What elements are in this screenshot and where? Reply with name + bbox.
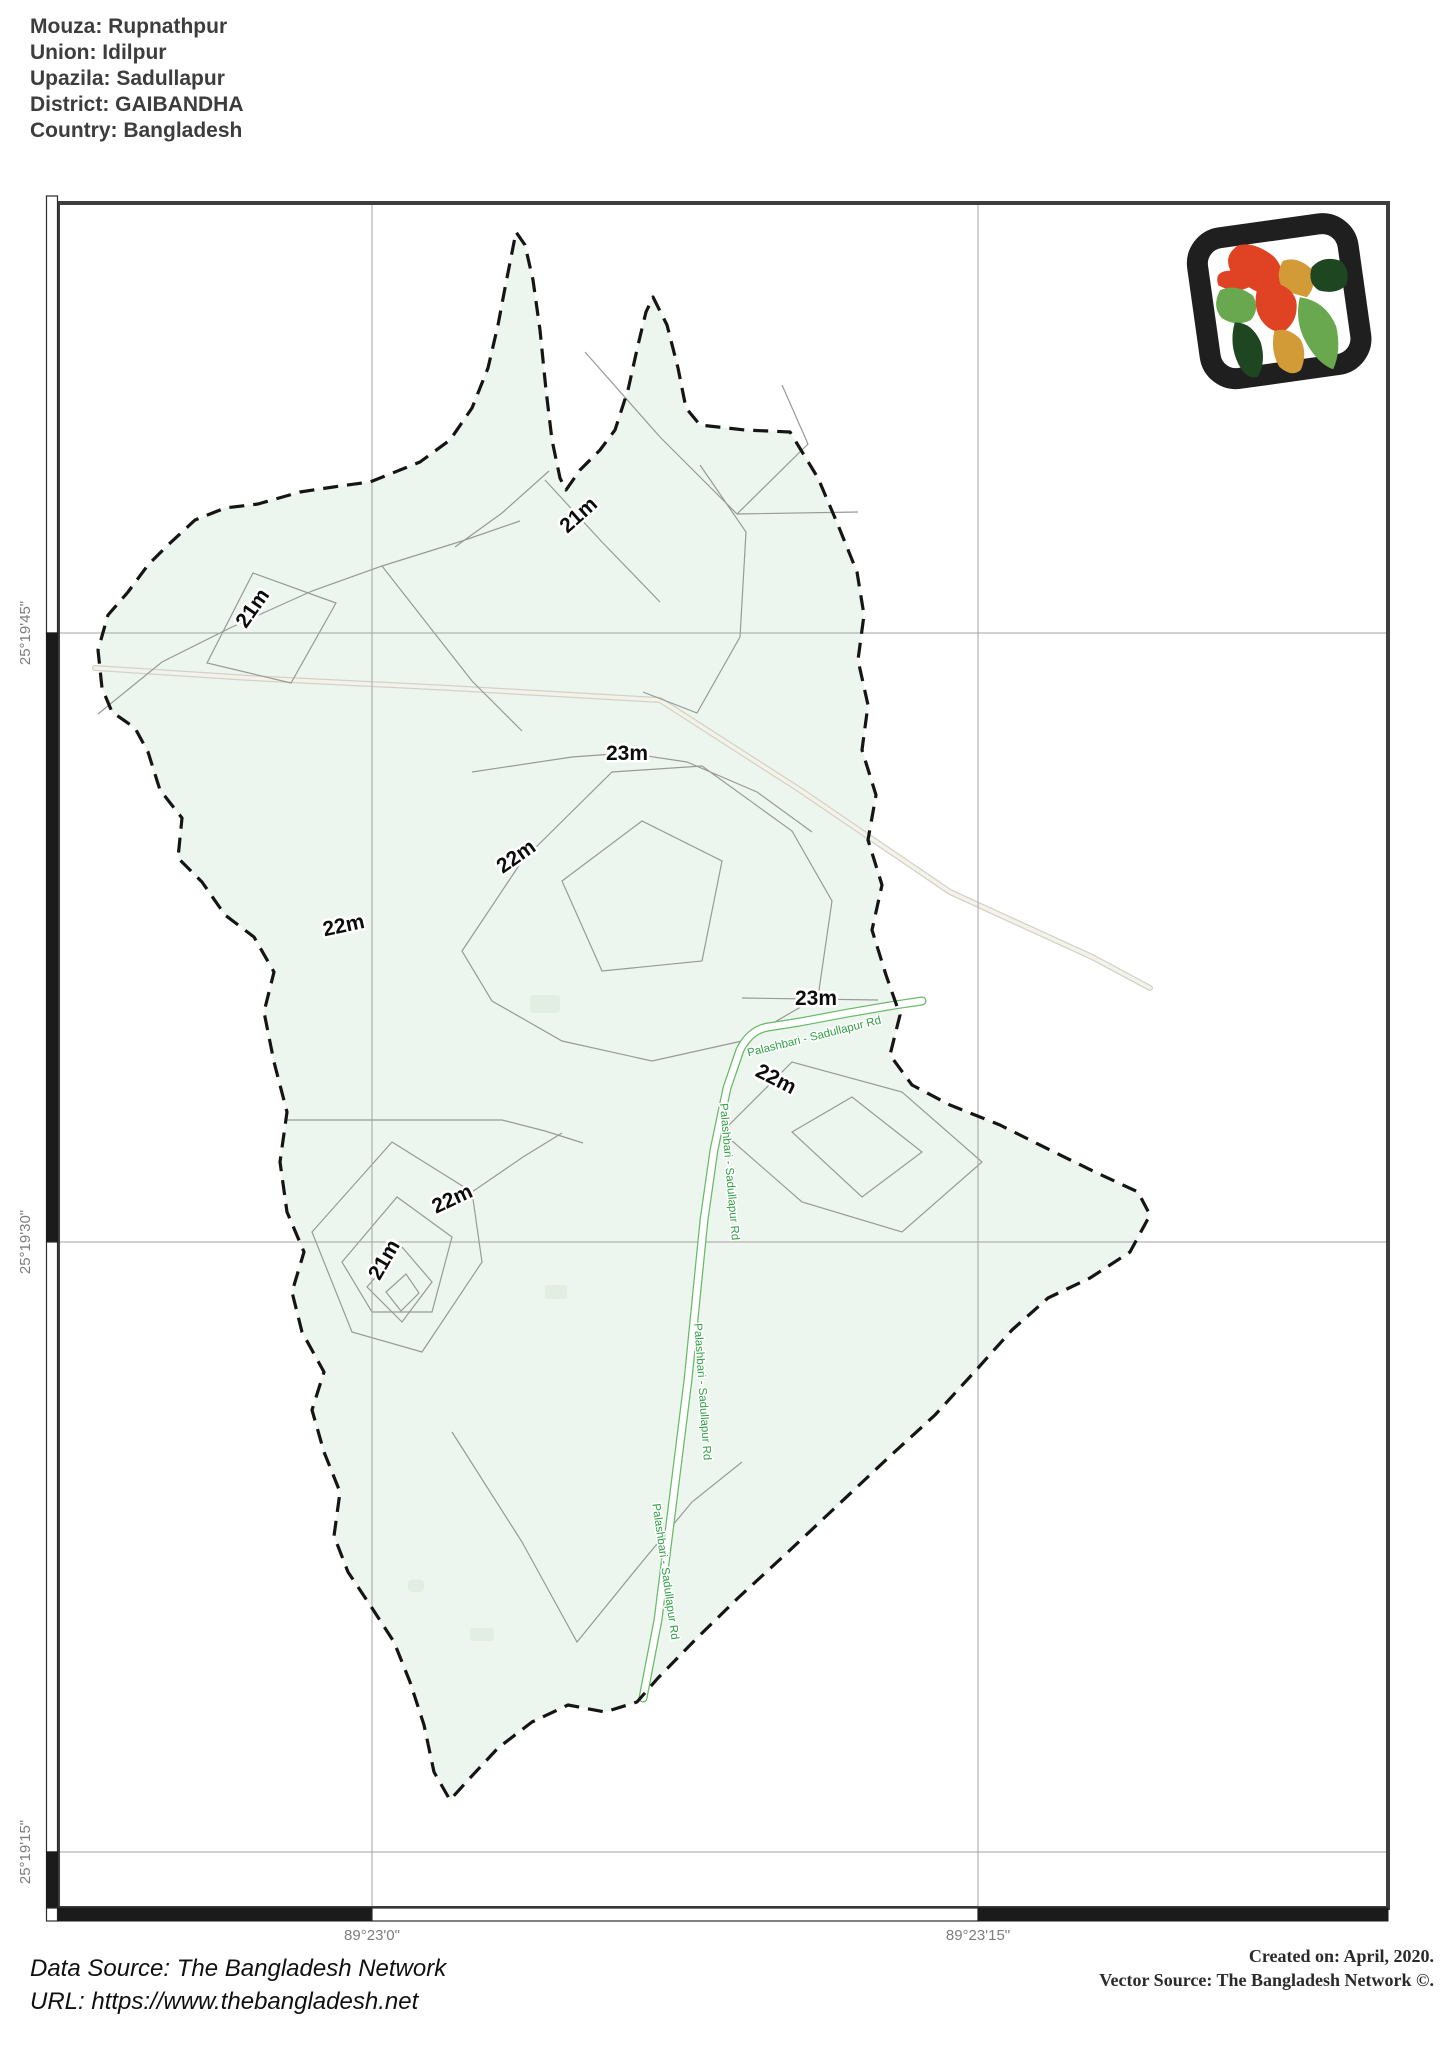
- border-bar-bottom: [58, 1908, 1388, 1921]
- vector-source-text: Vector Source: The Bangladesh Network ©.: [1099, 1968, 1434, 1992]
- map-sheet: Mouza: Rupnathpur Union: Idilpur Upazila…: [0, 0, 1448, 2048]
- contour-label: 23m: [606, 742, 648, 765]
- lat-label: 25°19'30": [17, 1210, 34, 1274]
- lon-label: 89°23'0": [344, 1927, 400, 1944]
- lon-label: 89°23'15": [946, 1927, 1010, 1944]
- mouza-map-canvas: Palashbari - Sadullapur Rd Palashbari - …: [0, 0, 1448, 2048]
- footer-left: Data Source: The Bangladesh Network URL:…: [30, 1952, 446, 2018]
- mouza-boundary-fill: [98, 232, 1150, 1800]
- data-source-text: Data Source: The Bangladesh Network: [30, 1952, 446, 1985]
- border-bar-left: [47, 196, 58, 1921]
- contour-label: 23m: [795, 987, 837, 1010]
- lat-label: 25°19'45": [17, 601, 34, 665]
- created-on-text: Created on: April, 2020.: [1099, 1944, 1434, 1968]
- footer-right: Created on: April, 2020. Vector Source: …: [1099, 1944, 1434, 1992]
- url-text: URL: https://www.thebangladesh.net: [30, 1985, 446, 2018]
- bangladesh-logo: [1194, 220, 1365, 386]
- lat-label: 25°19'15": [17, 1820, 34, 1884]
